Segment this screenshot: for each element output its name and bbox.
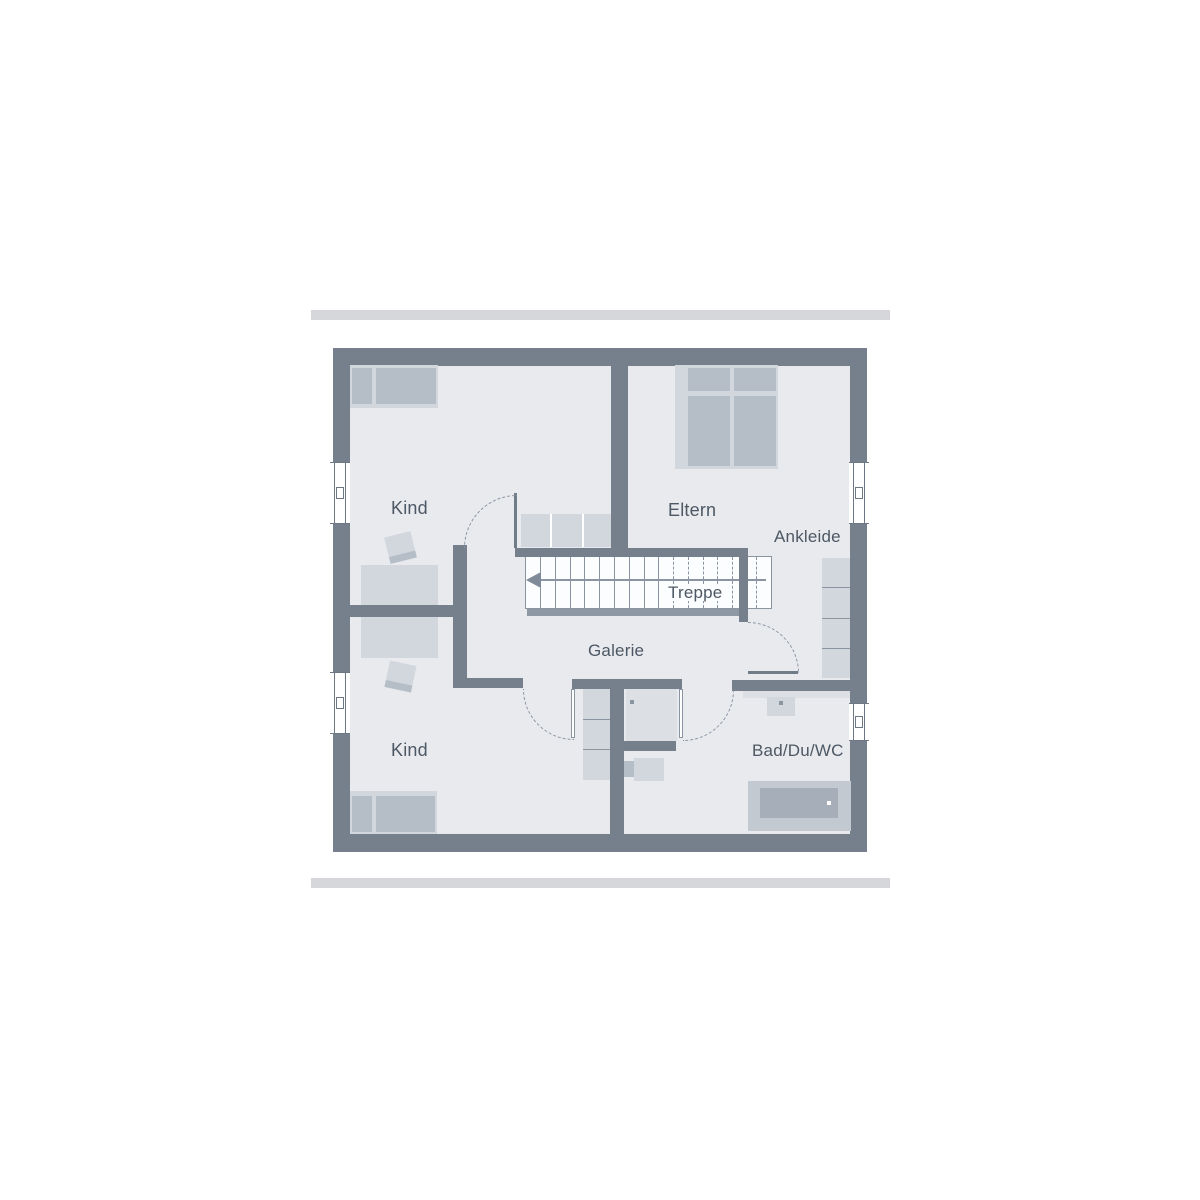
top-divider-bar [311,310,890,320]
stair-step-dashed [756,557,757,608]
stair-step [644,557,645,608]
wardrobe-cell [583,689,611,720]
stair-step-dashed [732,557,733,608]
stair-step [555,557,556,608]
wall-kind-divider [348,605,454,617]
chair-bottom [384,660,416,692]
window-frame-line [864,462,865,524]
wardrobe-cell [822,558,850,588]
desk-bottom [361,617,438,658]
wardrobe-cell [822,619,850,649]
bed-pillow [734,368,776,391]
window-handle-icon [336,697,344,709]
bed-mattress [688,396,730,466]
stair-step [584,557,585,608]
wall-bad-top [732,680,850,691]
wardrobe-cell [583,720,611,751]
window-frame-line [345,672,346,734]
window-handle-icon [855,487,863,499]
wardrobe-cell [822,588,850,618]
window-frame-line [334,672,335,734]
stair-step [629,557,630,608]
toilet-tank [624,761,634,777]
toilet-bowl [634,758,664,781]
bathtub-tap-icon [827,801,831,805]
bed-single-bottom [350,791,437,834]
room-label-kind-bottom: Kind [391,741,428,759]
bed-pillow [688,368,730,391]
window-frame-line [330,733,350,734]
window-handle-icon [336,487,344,499]
gallery-railing [527,609,743,616]
window-right-top [849,462,869,524]
window-frame-line [864,703,865,741]
window-frame-line [849,523,869,524]
stair-step [570,557,571,608]
window-frame-line [334,462,335,524]
sideboard [521,514,613,547]
window-frame-line [849,462,869,463]
room-label-bad: Bad/Du/WC [752,742,844,759]
window-frame-line [330,462,350,463]
sideboard-cell [521,514,552,547]
shower [626,688,677,741]
sideboard-cell [552,514,583,547]
window-left-top [330,462,350,524]
sideboard-cell [584,514,613,547]
bed-mattress [376,368,436,404]
vanity-counter [743,691,850,698]
window-frame-line [849,703,869,704]
stair-direction-arrow-icon [526,572,541,588]
window-frame-line [330,523,350,524]
wall-stair-right [739,548,748,622]
wardrobe-cell [822,649,850,678]
washbasin-tap-icon [779,701,783,705]
room-label-ankleide: Ankleide [774,528,841,545]
window-right-bottom [849,703,869,741]
window-frame-line [853,703,854,741]
staircase [525,556,772,609]
stair-step [614,557,615,608]
shower-drain-icon [630,700,634,704]
desk-top [361,565,438,605]
window-left-bottom [330,672,350,734]
wall-stair-top [515,548,747,557]
wall-central-vertical [610,688,624,834]
window-frame-line [853,462,854,524]
bed-single-top [350,365,438,408]
wardrobe-cell [583,750,611,780]
wardrobe-closet [583,689,611,780]
bed-pillow [352,368,372,404]
stair-step [658,557,659,608]
wall-kind-eltern [611,366,628,548]
room-label-kind-top: Kind [391,499,428,517]
window-frame-line [849,740,869,741]
bed-pillow [352,796,372,832]
room-label-treppe: Treppe [666,584,724,601]
wall-closet-top [572,679,682,689]
room-label-galerie: Galerie [588,642,644,659]
stair-direction-line [540,579,766,581]
room-label-eltern: Eltern [668,501,716,519]
wall-shower-bottom [624,741,676,751]
bed-mattress [376,796,435,832]
window-frame-line [345,462,346,524]
bed-mattress [734,396,776,466]
bed-double-eltern [675,365,778,469]
wall-corridor-vertical [453,545,467,688]
bottom-divider-bar [311,878,890,888]
wardrobe-ankleide [822,558,850,678]
washbasin [767,697,795,716]
window-handle-icon [855,716,863,728]
stair-step [599,557,600,608]
wall-corridor-horizontal [453,678,523,688]
window-frame-line [330,672,350,673]
floor-plan-canvas: Kind Eltern Ankleide Treppe Galerie Kind… [0,0,1200,1200]
